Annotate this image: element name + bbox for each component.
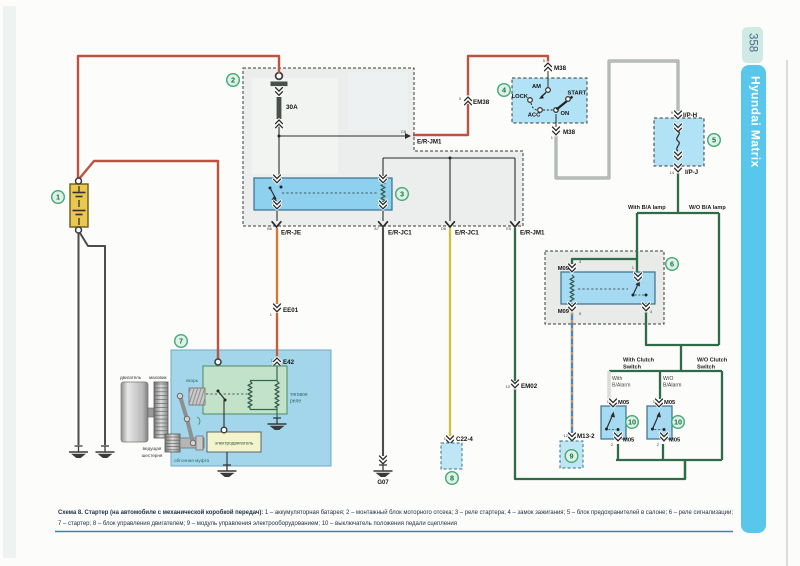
svg-text:C22-4: C22-4 [456, 436, 473, 443]
svg-text:M38: M38 [563, 129, 576, 136]
svg-text:обгонная муфта: обгонная муфта [174, 458, 210, 463]
svg-text:E/R-JC1: E/R-JC1 [455, 230, 479, 237]
svg-text:5: 5 [712, 136, 716, 145]
svg-text:E42: E42 [283, 359, 295, 366]
svg-text:9: 9 [569, 452, 573, 461]
svg-text:7: 7 [179, 337, 183, 346]
svg-text:E/R-JM1: E/R-JM1 [520, 230, 545, 237]
svg-text:LOCK: LOCK [512, 94, 529, 100]
svg-text:30A: 30A [286, 104, 298, 111]
svg-text:W/O: W/O [663, 376, 673, 382]
svg-text:C8: C8 [401, 129, 407, 134]
svg-text:With: With [612, 376, 622, 382]
svg-text:электродвигатель: электродвигатель [215, 441, 254, 446]
svg-text:AM: AM [532, 84, 541, 90]
svg-text:10: 10 [628, 418, 636, 427]
svg-text:7 – стартер; 8 – блок управлен: 7 – стартер; 8 – блок управления двигате… [58, 519, 458, 527]
svg-text:Схема 8. Стартер (на автомобил: Схема 8. Стартер (на автомобиле с механи… [58, 508, 733, 516]
svg-text:ACC: ACC [528, 113, 541, 119]
svg-text:M09: M09 [558, 266, 570, 272]
svg-text:B/Alarm: B/Alarm [612, 383, 630, 389]
svg-text:A7: A7 [374, 226, 380, 231]
svg-text:двигатель: двигатель [120, 375, 142, 380]
svg-text:M05: M05 [623, 438, 635, 444]
svg-text:шестерня: шестерня [142, 453, 163, 458]
svg-text:10: 10 [506, 384, 511, 389]
svg-text:8: 8 [450, 474, 454, 483]
svg-text:ведущая: ведущая [143, 446, 162, 451]
svg-text:якорь: якорь [186, 378, 199, 383]
svg-text:M13-2: M13-2 [577, 433, 595, 440]
svg-text:M05: M05 [669, 438, 681, 444]
svg-text:Hyundai Matrix: Hyundai Matrix [749, 76, 763, 168]
svg-text:D6: D6 [441, 226, 447, 231]
svg-text:W/O Clutch: W/O Clutch [697, 358, 728, 364]
svg-text:M05: M05 [664, 400, 676, 406]
svg-text:Switch: Switch [697, 365, 716, 371]
svg-text:E5: E5 [506, 226, 512, 231]
svg-text:With Clutch: With Clutch [623, 358, 655, 364]
svg-text:B6: B6 [267, 226, 273, 231]
svg-text:EM38: EM38 [473, 99, 490, 106]
svg-text:358: 358 [747, 33, 759, 52]
svg-text:E/R-JE: E/R-JE [281, 230, 301, 237]
svg-text:реле: реле [290, 399, 301, 405]
svg-text:M38: M38 [554, 65, 567, 72]
svg-text:I/P-J: I/P-J [685, 169, 699, 176]
svg-text:Switch: Switch [623, 365, 642, 371]
svg-text:6: 6 [670, 260, 674, 269]
svg-text:E/R-JC1: E/R-JC1 [388, 230, 412, 237]
svg-text:M09: M09 [558, 309, 570, 315]
svg-text:маховик: маховик [149, 375, 168, 380]
svg-text:EM02: EM02 [521, 383, 538, 390]
svg-text:3: 3 [400, 190, 404, 199]
svg-text:1: 1 [56, 193, 60, 202]
svg-text:2: 2 [231, 76, 235, 85]
svg-text:M05: M05 [618, 400, 630, 406]
svg-text:14: 14 [670, 170, 675, 175]
svg-text:I/P-H: I/P-H [683, 112, 698, 119]
svg-text:G07: G07 [377, 480, 389, 486]
svg-text:ON: ON [561, 111, 570, 117]
svg-text:EE01: EE01 [283, 307, 299, 314]
svg-text:With B/A lamp: With B/A lamp [628, 205, 666, 211]
svg-text:START: START [568, 91, 587, 97]
svg-text:12: 12 [564, 433, 569, 438]
svg-text:W/O B/A lamp: W/O B/A lamp [689, 205, 726, 211]
svg-text:B/Alarm: B/Alarm [663, 383, 681, 389]
svg-text:E/R-JM1: E/R-JM1 [417, 139, 442, 146]
svg-text:10: 10 [674, 418, 682, 427]
svg-text:тяговое: тяговое [290, 392, 308, 398]
